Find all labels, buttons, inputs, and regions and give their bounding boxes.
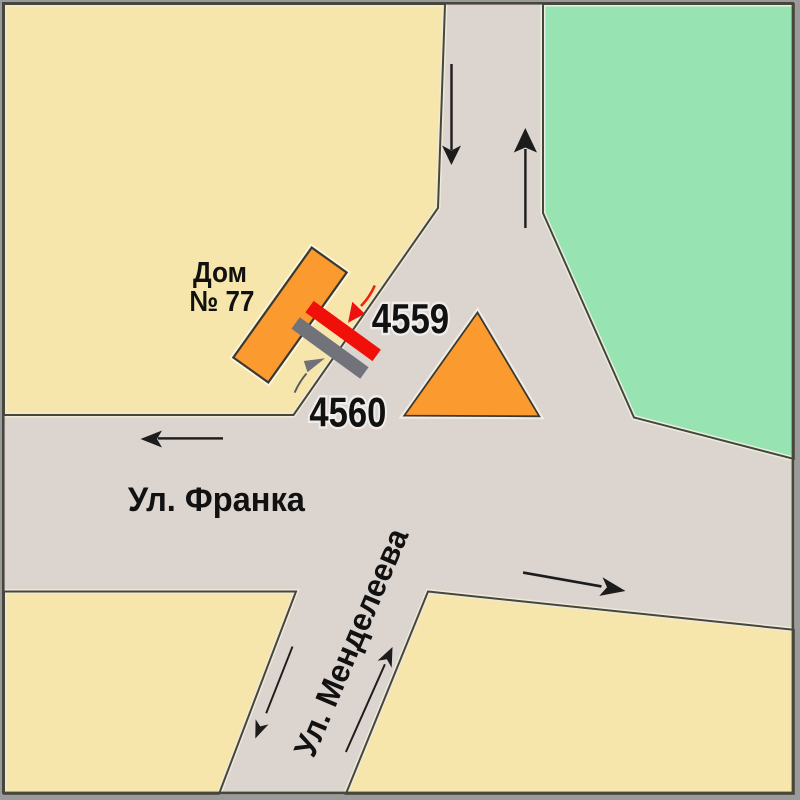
svg-text:Дом: Дом: [193, 257, 247, 289]
svg-text:4559: 4559: [372, 295, 450, 342]
svg-text:№ 77: № 77: [189, 286, 254, 318]
svg-text:4560: 4560: [309, 388, 386, 435]
svg-text:Ул. Франка: Ул. Франка: [128, 481, 306, 519]
